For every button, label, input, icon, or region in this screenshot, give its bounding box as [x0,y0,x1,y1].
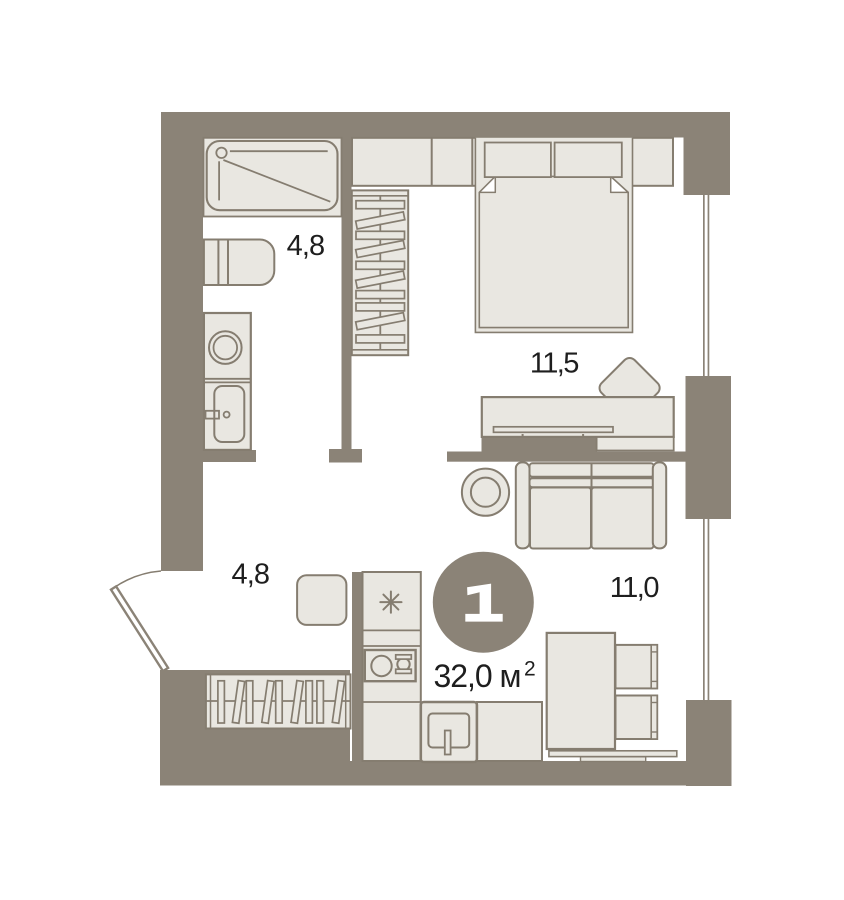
svg-text:32,0 м: 32,0 м [434,658,522,694]
svg-text:2: 2 [524,658,536,681]
svg-text:11,5: 11,5 [530,347,579,379]
svg-text:4,8: 4,8 [287,230,325,262]
svg-text:11,0: 11,0 [610,572,659,604]
svg-text:4,8: 4,8 [232,559,270,591]
